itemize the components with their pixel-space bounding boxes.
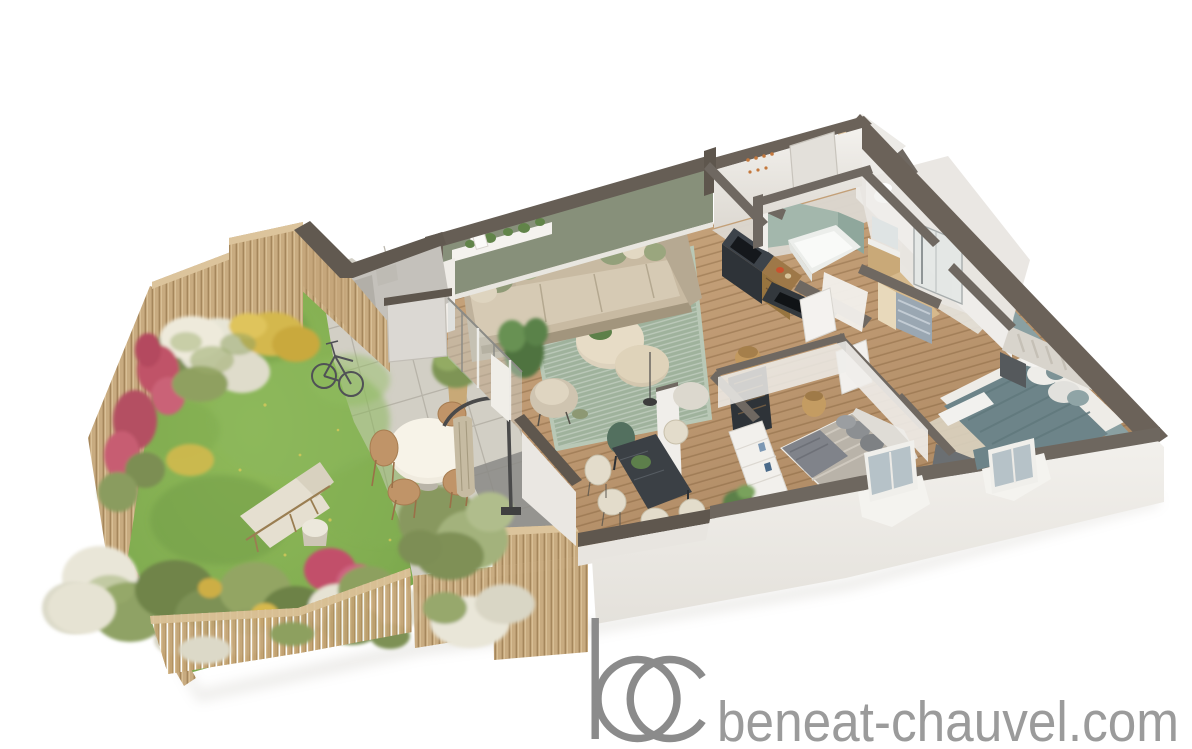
- svg-text:beneat-chauvel.com: beneat-chauvel.com: [717, 690, 1179, 749]
